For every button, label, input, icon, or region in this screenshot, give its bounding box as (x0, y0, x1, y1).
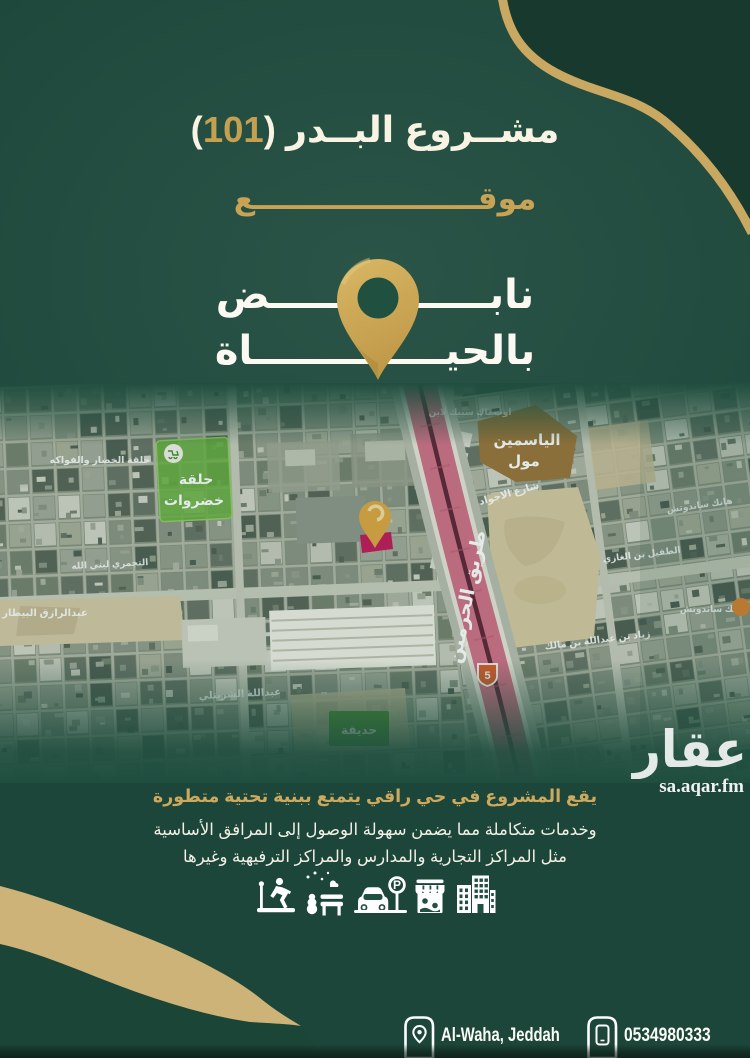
svg-text:P: P (393, 878, 401, 892)
